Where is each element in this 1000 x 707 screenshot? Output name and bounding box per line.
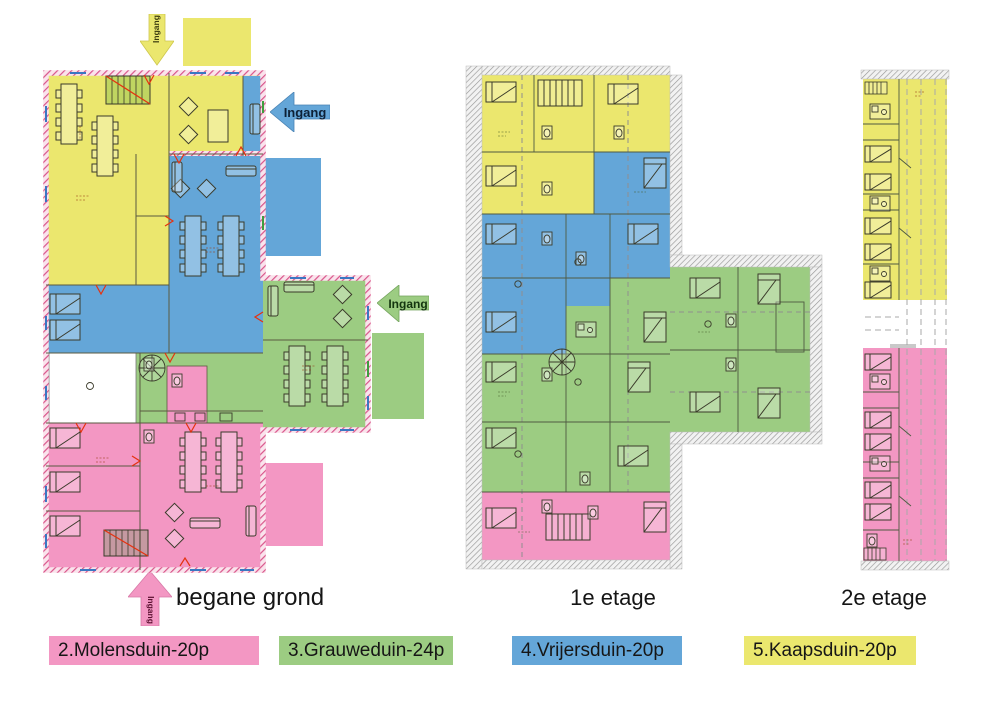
ground-floor-plan: [40, 66, 375, 576]
legend-item-grauweduin: 3.Grauweduin-24p: [279, 636, 453, 665]
floor-label-first: 1e etage: [563, 585, 663, 611]
entrance-arrow-label: Ingang: [388, 297, 427, 311]
legend-item-vrijersduin: 4.Vrijersduin-20p: [512, 636, 682, 665]
legend-item-kaapsduin: 5.Kaapsduin-20p: [744, 636, 916, 665]
zone-grauweduin-green: [263, 278, 368, 430]
second-floor-plan: [855, 62, 955, 578]
legend-item-molensduin: 2.Molensduin-20p: [49, 636, 259, 665]
terrace-yellow: [183, 18, 251, 66]
zones-ground: [46, 73, 368, 570]
floor-label-ground: begane grond: [176, 584, 324, 612]
entrance-arrow-yellow: Ingang: [140, 14, 174, 66]
entrance-arrow-green: Ingang: [377, 285, 429, 322]
legend-item-label: 5.Kaapsduin-20p: [753, 640, 897, 661]
first-floor-plan: [458, 62, 823, 574]
entrance-arrow-label: Ingang: [151, 15, 161, 43]
legend-item-label: 3.Grauweduin-24p: [288, 640, 444, 661]
legend-item-label: 2.Molensduin-20p: [58, 640, 209, 661]
terrace-green: [372, 333, 424, 419]
floor-label-second: 2e etage: [834, 585, 934, 611]
legend-item-label: 4.Vrijersduin-20p: [521, 640, 664, 661]
floorplan-page: Ingang Ingang Ingang Ingang: [0, 0, 1000, 707]
entrance-arrow-label: Ingang: [146, 596, 156, 624]
entrance-arrow-pink: Ingang: [128, 571, 172, 626]
